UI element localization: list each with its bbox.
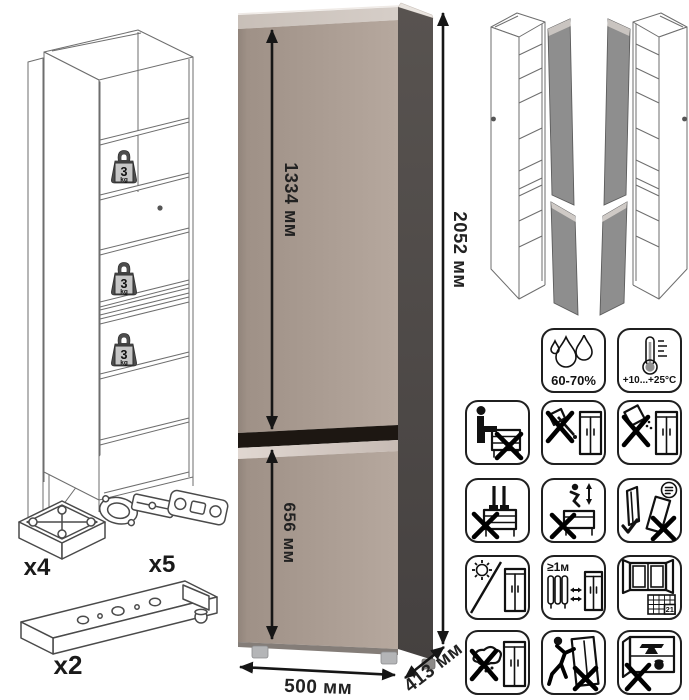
load-unit: kg bbox=[120, 177, 128, 184]
thermometer-icon bbox=[622, 335, 678, 375]
no-sitting-icon bbox=[465, 400, 530, 465]
no-dragging-icon bbox=[541, 630, 606, 695]
lower-door-height-label: 656 мм bbox=[280, 502, 299, 563]
no-wet-cleaning-icon bbox=[465, 630, 530, 695]
no-abrasives-icon bbox=[617, 400, 682, 465]
load-unit: kg bbox=[120, 289, 128, 296]
no-standing-icon bbox=[465, 478, 530, 543]
humidity-icon: 60-70% bbox=[541, 328, 606, 393]
shelf-load-badge: 3 kg bbox=[111, 263, 136, 296]
rail-qty: x2 bbox=[54, 650, 83, 680]
side-panel bbox=[398, 7, 433, 660]
cabinet-render: 1334 мм 656 мм 2052 мм 500 мм 413 мм bbox=[225, 0, 475, 700]
no-heavy-items-icon bbox=[617, 630, 682, 695]
lower-door bbox=[238, 451, 398, 649]
foot-qty: x4 bbox=[24, 554, 51, 581]
heater-distance-icon: ≥1м bbox=[541, 555, 606, 620]
right-hinged-cabinet bbox=[600, 13, 687, 315]
wardrobe-glyph bbox=[580, 412, 601, 454]
upper-door bbox=[238, 20, 398, 433]
temperature-icon: +10...+25°C bbox=[617, 328, 682, 393]
width-label: 500 мм bbox=[284, 676, 353, 699]
wardrobe-glyph bbox=[505, 569, 525, 611]
no-jumping-icon bbox=[541, 478, 606, 543]
hardware-set: x4 x5 x2 bbox=[5, 470, 240, 700]
hinge-qty: x5 bbox=[149, 551, 176, 578]
humidity-label: 60-70% bbox=[551, 374, 596, 387]
arrows bbox=[570, 587, 582, 601]
door-orientation-diagrams bbox=[465, 5, 689, 323]
temperature-label: +10...+25°C bbox=[623, 376, 676, 386]
wardrobe-glyph bbox=[656, 412, 677, 454]
shelf-load-badge: 3 kg bbox=[111, 151, 136, 184]
shelves bbox=[519, 44, 542, 247]
wardrobe-glyph bbox=[504, 642, 525, 686]
left-hinged-cabinet bbox=[491, 13, 578, 315]
foot-drawing bbox=[19, 501, 105, 559]
wireframe-cabinet-open: 3 kg 3 kg 3 kg bbox=[8, 22, 223, 547]
rail-drawing bbox=[21, 581, 217, 654]
ventilation-calendar-icon: 21 bbox=[617, 555, 682, 620]
arrow-width bbox=[240, 667, 395, 675]
water-drops-icon bbox=[546, 335, 602, 373]
calendar-day-label: 21 bbox=[665, 605, 673, 614]
hinge-drawing bbox=[97, 475, 229, 545]
product-spec-sheet: 3 kg 3 kg 3 kg bbox=[0, 0, 689, 700]
avoid-sunlight-icon bbox=[465, 555, 530, 620]
distance-label: ≥1м bbox=[547, 560, 569, 574]
hinge-dot bbox=[157, 205, 162, 210]
upper-door-height-label: 1334 мм bbox=[281, 162, 301, 237]
wardrobe-glyph bbox=[585, 572, 602, 610]
calendar: 21 bbox=[648, 595, 675, 614]
upper-door-panel bbox=[548, 19, 574, 205]
load-unit: kg bbox=[120, 360, 128, 367]
anvil bbox=[639, 644, 664, 654]
no-sharp-tools-icon bbox=[541, 400, 606, 465]
transport-check-icon bbox=[617, 478, 682, 543]
shelf-load-badge: 3 kg bbox=[111, 334, 136, 367]
